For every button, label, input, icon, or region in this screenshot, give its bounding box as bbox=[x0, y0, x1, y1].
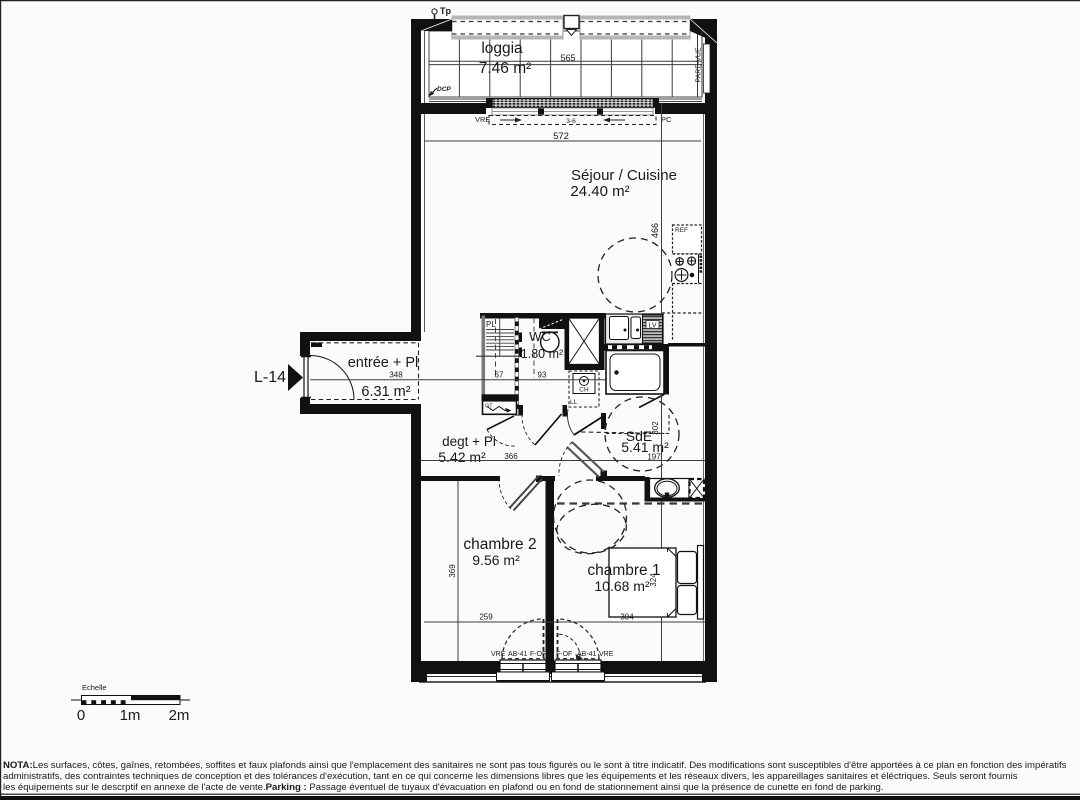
svg-text:565: 565 bbox=[560, 53, 575, 63]
svg-text:WC: WC bbox=[529, 329, 551, 344]
svg-text:L-14: L-14 bbox=[254, 369, 286, 386]
svg-text:1.80 m²: 1.80 m² bbox=[521, 347, 563, 361]
svg-text:les équipements sur le descrpt: les équipements sur le descrptif en anne… bbox=[3, 782, 884, 793]
svg-text:197: 197 bbox=[647, 453, 661, 462]
svg-text:VRE: VRE bbox=[475, 115, 490, 124]
svg-text:7.46 m²: 7.46 m² bbox=[479, 60, 532, 77]
svg-text:LV: LV bbox=[648, 323, 656, 330]
svg-text:259: 259 bbox=[479, 613, 493, 622]
svg-text:Echelle: Echelle bbox=[82, 683, 107, 692]
svg-text:PL: PL bbox=[486, 320, 496, 329]
svg-text:67: 67 bbox=[495, 371, 504, 380]
svg-text:VRE: VRE bbox=[599, 651, 614, 658]
svg-text:6.31 m²: 6.31 m² bbox=[361, 384, 410, 400]
svg-text:304: 304 bbox=[620, 613, 634, 622]
svg-text:VRE: VRE bbox=[491, 651, 506, 658]
svg-text:F-OF: F-OF bbox=[530, 651, 546, 658]
svg-text:9.56 m²: 9.56 m² bbox=[472, 552, 520, 568]
svg-text:572: 572 bbox=[553, 131, 569, 142]
svg-text:loggia: loggia bbox=[481, 40, 523, 57]
svg-text:302: 302 bbox=[651, 421, 660, 435]
svg-text:LL: LL bbox=[570, 399, 578, 406]
svg-text:93: 93 bbox=[538, 371, 547, 380]
svg-text:1m: 1m bbox=[120, 707, 141, 724]
svg-text:REF: REF bbox=[675, 227, 688, 234]
svg-text:CH: CH bbox=[579, 387, 589, 394]
svg-text:degt + Pl: degt + Pl bbox=[442, 434, 496, 449]
svg-text:Tp: Tp bbox=[440, 6, 451, 16]
svg-text:369: 369 bbox=[448, 564, 457, 578]
svg-text:F-OF: F-OF bbox=[556, 651, 572, 658]
svg-text:PC: PC bbox=[661, 115, 672, 124]
svg-text:324: 324 bbox=[649, 573, 658, 587]
svg-text:PARE-VUE: PARE-VUE bbox=[696, 47, 703, 83]
svg-text:GT: GT bbox=[485, 404, 493, 410]
svg-text:348: 348 bbox=[389, 371, 403, 380]
svg-text:DCP: DCP bbox=[437, 86, 451, 93]
svg-text:5.42 m²: 5.42 m² bbox=[438, 449, 486, 465]
svg-text:3-6: 3-6 bbox=[566, 118, 576, 125]
svg-text:entrée + Pl: entrée + Pl bbox=[348, 355, 419, 371]
svg-text:chambre 2: chambre 2 bbox=[463, 536, 536, 553]
svg-text:466: 466 bbox=[650, 223, 660, 238]
svg-text:AB-41: AB-41 bbox=[577, 651, 597, 658]
svg-text:2m: 2m bbox=[169, 707, 190, 724]
svg-text:24.40 m²: 24.40 m² bbox=[570, 183, 629, 200]
svg-text:10.68 m²: 10.68 m² bbox=[594, 578, 650, 594]
svg-text:0: 0 bbox=[77, 707, 85, 724]
svg-text:AB-41: AB-41 bbox=[508, 651, 528, 658]
svg-text:366: 366 bbox=[504, 452, 518, 461]
svg-text:NOTA:Les surfaces, côtes, gaîn: NOTA:Les surfaces, côtes, gaînes, retomb… bbox=[3, 760, 1067, 771]
svg-text:administratifs, des contrainte: administratifs, des contraintes techniqu… bbox=[3, 771, 1018, 782]
